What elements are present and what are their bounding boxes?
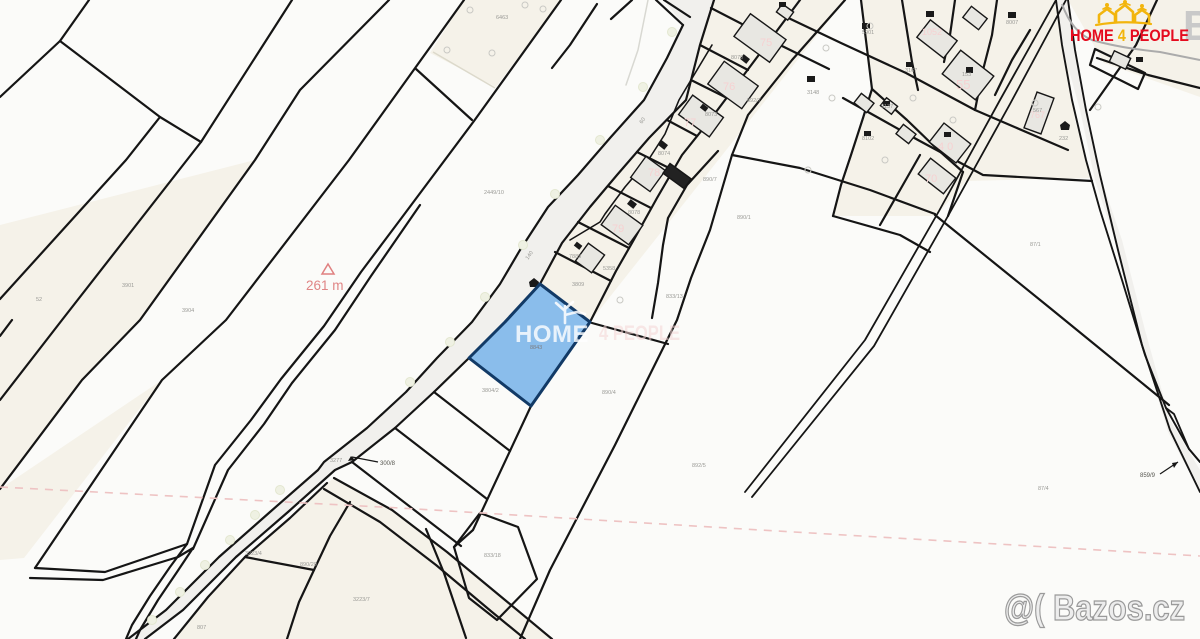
svg-text:7883: 7883 (569, 254, 581, 260)
svg-text:300/8: 300/8 (380, 461, 396, 467)
svg-text:8073: 8073 (705, 112, 717, 118)
svg-text:78: 78 (648, 167, 660, 179)
svg-text:890/20: 890/20 (300, 562, 317, 568)
svg-text:890/4: 890/4 (602, 390, 616, 396)
svg-text:5901: 5901 (862, 30, 874, 36)
svg-text:6463: 6463 (496, 15, 508, 21)
svg-text:8102: 8102 (862, 136, 874, 142)
svg-text:HOME: HOME (515, 321, 589, 348)
svg-text:75: 75 (760, 37, 772, 49)
svg-text:261 m: 261 m (306, 278, 344, 293)
svg-text:2449/10: 2449/10 (484, 190, 504, 196)
svg-text:8078: 8078 (628, 210, 640, 216)
svg-text:3223/7: 3223/7 (353, 597, 370, 603)
svg-text:8074: 8074 (658, 151, 670, 157)
svg-text:HOME 4 PEOPLE: HOME 4 PEOPLE (1070, 27, 1189, 45)
svg-text:833/18: 833/18 (484, 553, 501, 559)
svg-text:3904: 3904 (182, 308, 194, 314)
svg-text:8007: 8007 (1006, 20, 1018, 26)
svg-text:3804/2: 3804/2 (482, 388, 499, 394)
svg-text:890/1: 890/1 (737, 215, 751, 221)
svg-text:70: 70 (925, 173, 937, 185)
svg-text:833/13: 833/13 (666, 294, 683, 300)
svg-text:87/4: 87/4 (1038, 486, 1049, 492)
svg-text:87/1: 87/1 (1030, 242, 1041, 248)
svg-text:9137: 9137 (881, 104, 893, 110)
svg-text:3901: 3901 (122, 283, 134, 289)
svg-text:3167: 3167 (905, 68, 917, 74)
svg-text:76: 76 (723, 81, 735, 93)
svg-text:232: 232 (1059, 136, 1068, 142)
svg-text:79: 79 (612, 223, 624, 235)
svg-text:8070: 8070 (731, 55, 743, 61)
svg-text:3148: 3148 (807, 90, 819, 96)
svg-text:55: 55 (956, 77, 970, 92)
svg-text:807: 807 (197, 625, 206, 631)
svg-text:859/9: 859/9 (1140, 473, 1156, 479)
svg-text:4 0: 4 0 (938, 141, 953, 153)
svg-text:153: 153 (962, 72, 971, 78)
svg-text:567: 567 (1033, 108, 1042, 114)
svg-text:77: 77 (684, 117, 696, 129)
svg-text:@( Bazos.cz: @( Bazos.cz (1004, 587, 1185, 628)
svg-text:892/5: 892/5 (692, 463, 706, 469)
svg-text:4 PEOPLE: 4 PEOPLE (599, 322, 680, 345)
svg-text:52: 52 (36, 297, 42, 303)
svg-text:1052: 1052 (922, 27, 942, 37)
svg-text:3223/4: 3223/4 (245, 551, 262, 557)
svg-text:3277: 3277 (330, 458, 342, 464)
svg-text:5358: 5358 (603, 266, 615, 272)
svg-text:890/7: 890/7 (703, 177, 717, 183)
svg-text:3809: 3809 (572, 282, 584, 288)
svg-text:892/7: 892/7 (747, 98, 761, 104)
